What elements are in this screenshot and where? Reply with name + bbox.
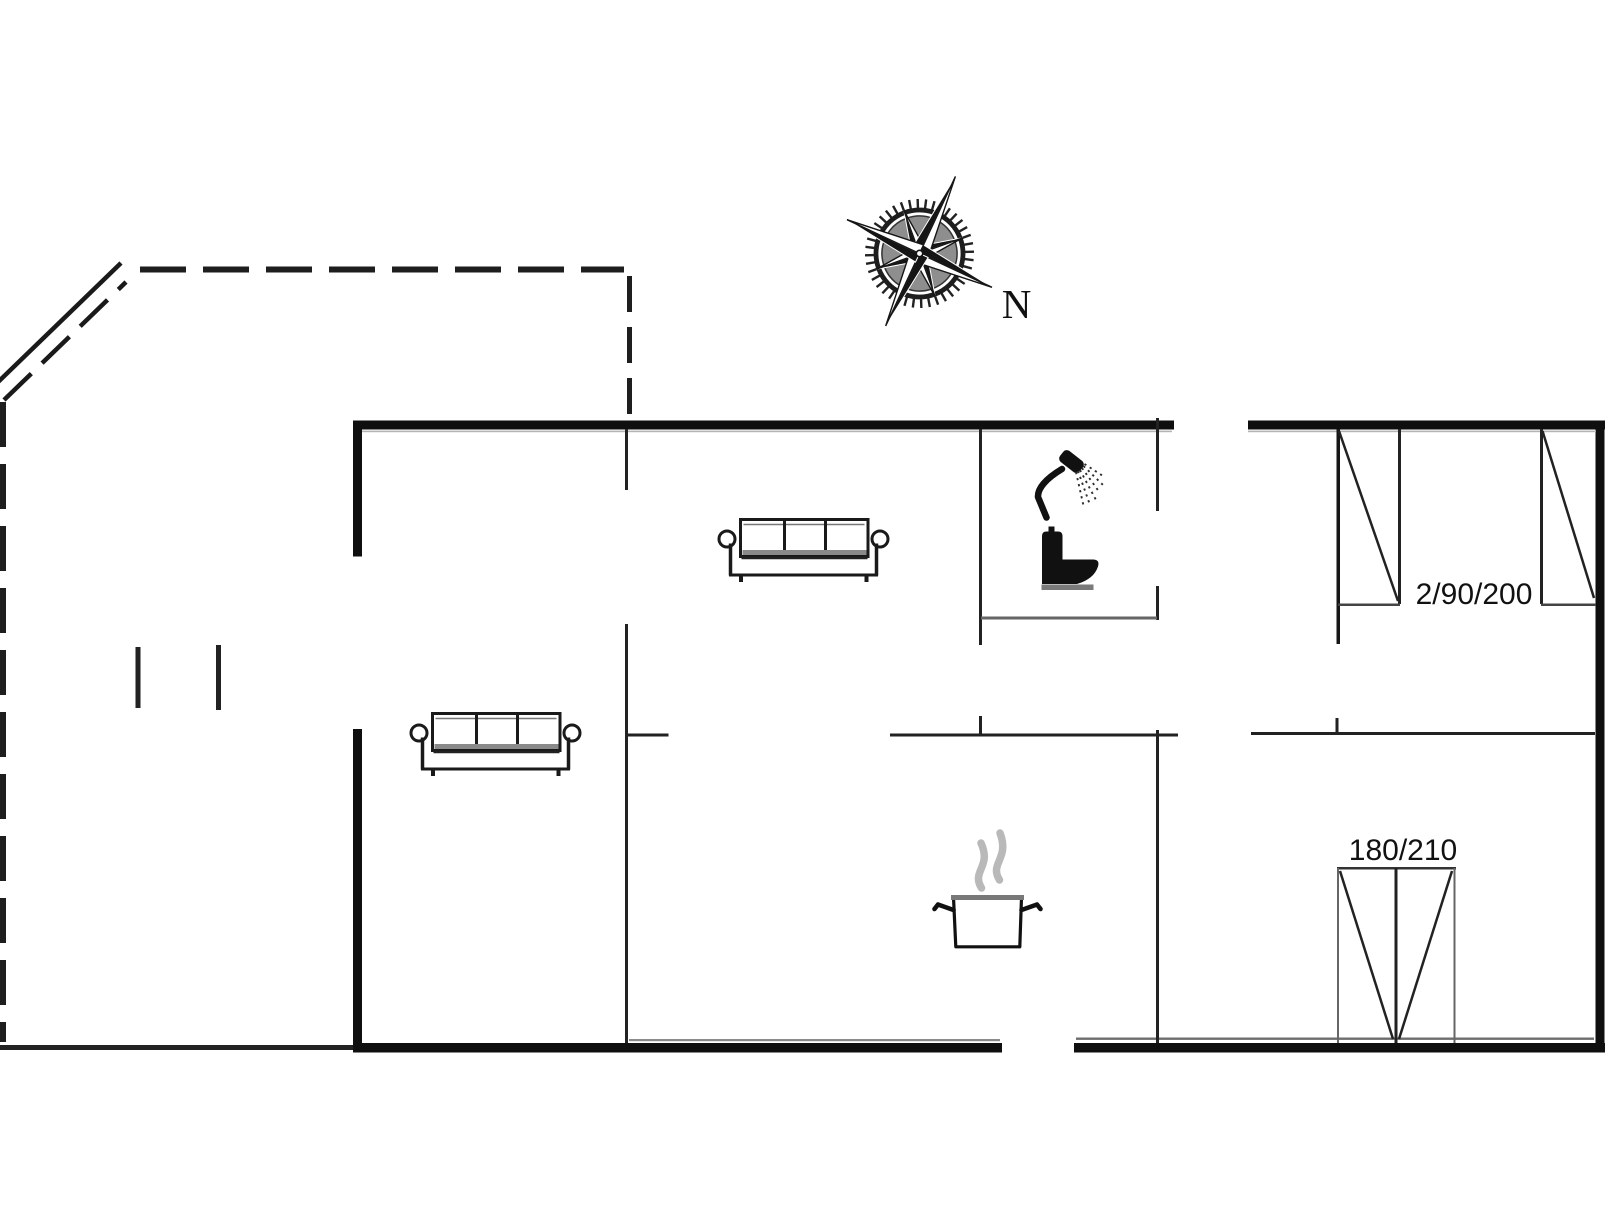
svg-text:2/90/200: 2/90/200 xyxy=(1416,578,1533,611)
svg-text:180/210: 180/210 xyxy=(1349,834,1457,867)
svg-text:N: N xyxy=(1002,281,1032,327)
